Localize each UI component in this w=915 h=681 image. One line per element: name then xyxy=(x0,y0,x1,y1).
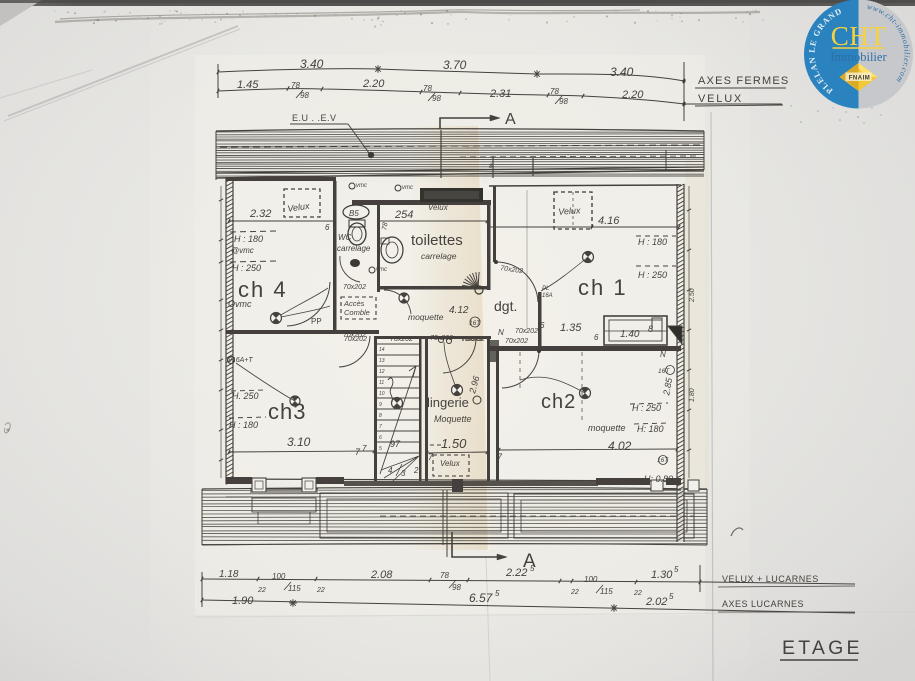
svg-text:78: 78 xyxy=(440,571,449,580)
svg-text:WC: WC xyxy=(338,233,352,242)
svg-text:H. 250: H. 250 xyxy=(232,391,259,401)
svg-text:ETAGE: ETAGE xyxy=(782,637,863,659)
svg-text:6.57: 6.57 xyxy=(469,591,494,605)
svg-text:98: 98 xyxy=(452,583,461,592)
svg-text:A: A xyxy=(505,111,516,128)
svg-text:14: 14 xyxy=(379,347,385,353)
svg-text:H : 180: H : 180 xyxy=(638,237,667,247)
svg-text:H : 250: H : 250 xyxy=(232,263,261,273)
svg-text:vmc: vmc xyxy=(356,183,367,189)
svg-text:1.50: 1.50 xyxy=(441,436,467,451)
svg-text:2.02: 2.02 xyxy=(645,596,667,608)
svg-text:vmc: vmc xyxy=(402,185,413,191)
svg-text:1.80: 1.80 xyxy=(689,388,696,402)
svg-text:E.U . .E.V: E.U . .E.V xyxy=(292,113,337,123)
svg-text:9: 9 xyxy=(379,402,382,408)
svg-text:2.20: 2.20 xyxy=(362,78,385,90)
svg-text:98: 98 xyxy=(432,94,441,103)
svg-text:7: 7 xyxy=(379,424,382,430)
svg-text:3.70: 3.70 xyxy=(443,58,467,72)
svg-text:Moquette: Moquette xyxy=(434,414,472,424)
svg-text:6: 6 xyxy=(594,333,599,342)
svg-text:Accès: Accès xyxy=(343,299,365,308)
svg-text:H : 250: H : 250 xyxy=(632,403,661,413)
svg-text:97: 97 xyxy=(390,439,401,449)
svg-text:2.31: 2.31 xyxy=(489,88,511,100)
svg-text:AXES LUCARNES: AXES LUCARNES xyxy=(722,599,804,609)
svg-text:2.08: 2.08 xyxy=(370,569,393,581)
svg-text:ch 1: ch 1 xyxy=(578,275,628,300)
svg-text:carrelage: carrelage xyxy=(337,244,371,253)
svg-text:22: 22 xyxy=(316,587,325,594)
svg-text:3.40: 3.40 xyxy=(610,65,634,79)
svg-text:13: 13 xyxy=(379,358,385,364)
svg-text:70x202: 70x202 xyxy=(515,328,538,335)
svg-text:70x202: 70x202 xyxy=(505,338,528,345)
svg-text:Comble: Comble xyxy=(344,308,370,317)
svg-text:toilettes: toilettes xyxy=(411,232,463,249)
svg-text:115: 115 xyxy=(600,587,613,596)
svg-text:moquette: moquette xyxy=(588,423,626,433)
svg-text:6: 6 xyxy=(379,435,382,441)
svg-text:8: 8 xyxy=(648,324,653,334)
svg-text:22: 22 xyxy=(570,589,579,596)
svg-text:1.35: 1.35 xyxy=(560,322,582,334)
svg-text:5: 5 xyxy=(674,565,679,574)
svg-text:N: N xyxy=(660,350,666,359)
svg-text:78: 78 xyxy=(550,87,559,96)
svg-text:ch2: ch2 xyxy=(541,391,576,413)
svg-text:2.50: 2.50 xyxy=(689,288,696,303)
svg-text:7: 7 xyxy=(362,444,367,453)
svg-text:H: 180: H: 180 xyxy=(637,424,664,434)
svg-text:70x202: 70x202 xyxy=(344,336,367,343)
svg-text:vmc: vmc xyxy=(376,267,387,273)
svg-text:dgt.: dgt. xyxy=(494,298,517,314)
svg-text:1.90: 1.90 xyxy=(232,595,254,607)
svg-text:254: 254 xyxy=(394,209,413,221)
svg-text:70x202: 70x202 xyxy=(390,336,413,343)
svg-text:AXES FERMES: AXES FERMES xyxy=(698,75,789,87)
svg-text:1.45: 1.45 xyxy=(237,79,259,91)
svg-text:Immobilier: Immobilier xyxy=(830,50,887,64)
svg-text:4.16: 4.16 xyxy=(598,215,620,227)
svg-text:lingerie: lingerie xyxy=(427,395,469,410)
svg-text:16A: 16A xyxy=(542,293,553,299)
svg-text:22: 22 xyxy=(257,587,266,594)
svg-text:N: N xyxy=(498,328,504,337)
svg-text:3.10: 3.10 xyxy=(287,435,311,449)
svg-text:4.02: 4.02 xyxy=(608,439,632,453)
svg-text:78: 78 xyxy=(423,84,432,93)
svg-text:98: 98 xyxy=(559,97,568,106)
svg-text:4.12: 4.12 xyxy=(449,305,469,316)
svg-text:115: 115 xyxy=(288,584,301,593)
svg-text:CHT: CHT xyxy=(831,21,887,51)
svg-text:Velux: Velux xyxy=(558,205,581,217)
svg-text:11: 11 xyxy=(379,380,384,386)
svg-text:carrelage: carrelage xyxy=(421,251,457,261)
svg-text:Velux: Velux xyxy=(428,203,449,212)
svg-text:H : 250: H : 250 xyxy=(638,270,667,280)
svg-text:2.22: 2.22 xyxy=(505,567,527,579)
svg-text:100: 100 xyxy=(584,575,598,584)
svg-text:100: 100 xyxy=(272,572,286,581)
svg-text:12: 12 xyxy=(379,369,385,375)
svg-text:H: 0.80: H: 0.80 xyxy=(644,474,673,484)
svg-text:2.20: 2.20 xyxy=(621,89,644,101)
svg-text:78: 78 xyxy=(381,222,389,231)
svg-text:ch3: ch3 xyxy=(268,399,306,424)
svg-text:5: 5 xyxy=(530,564,535,573)
svg-text:1.18: 1.18 xyxy=(219,569,239,580)
svg-text:2.32: 2.32 xyxy=(249,208,271,220)
svg-text:5: 5 xyxy=(669,592,674,601)
svg-text:3.40: 3.40 xyxy=(300,57,324,71)
svg-text:VELUX + LUCARNES: VELUX + LUCARNES xyxy=(722,574,819,584)
svg-text:8: 8 xyxy=(379,413,382,419)
svg-text:22: 22 xyxy=(633,590,642,597)
svg-text:Velux: Velux xyxy=(440,459,461,468)
svg-text:78: 78 xyxy=(291,81,300,90)
svg-text:5: 5 xyxy=(495,589,500,598)
svg-text:H : 180: H : 180 xyxy=(234,234,263,244)
svg-text:FNAIM: FNAIM xyxy=(849,76,871,82)
svg-text:B5: B5 xyxy=(349,209,359,218)
svg-text:5: 5 xyxy=(379,446,382,452)
svg-text:H : 180: H : 180 xyxy=(229,420,258,430)
svg-text:Ovmc: Ovmc xyxy=(228,299,252,309)
svg-text:6: 6 xyxy=(325,223,330,232)
svg-text:70x202: 70x202 xyxy=(461,336,484,343)
svg-text:3: 3 xyxy=(401,469,406,478)
svg-text:@vmc: @vmc xyxy=(231,246,254,255)
svg-text:PP: PP xyxy=(311,317,322,326)
svg-text:6: 6 xyxy=(540,321,545,330)
svg-text:1.30: 1.30 xyxy=(651,569,673,581)
svg-text:1.40: 1.40 xyxy=(620,329,640,340)
svg-text:4: 4 xyxy=(388,466,393,475)
svg-text:10: 10 xyxy=(379,391,385,397)
svg-text:98: 98 xyxy=(300,91,309,100)
svg-text:VELUX: VELUX xyxy=(698,93,743,105)
svg-text:moquette: moquette xyxy=(408,312,444,322)
svg-text:2: 2 xyxy=(413,466,419,475)
svg-text:70x202: 70x202 xyxy=(343,284,366,291)
